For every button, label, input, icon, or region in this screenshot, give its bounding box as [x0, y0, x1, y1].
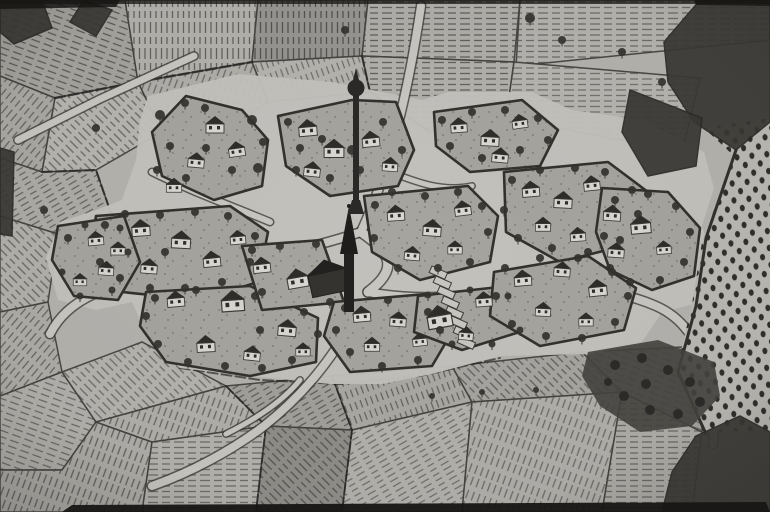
- historic-village-map: [0, 0, 770, 512]
- map-canvas: [0, 0, 770, 512]
- vignette-overlay: [0, 0, 770, 512]
